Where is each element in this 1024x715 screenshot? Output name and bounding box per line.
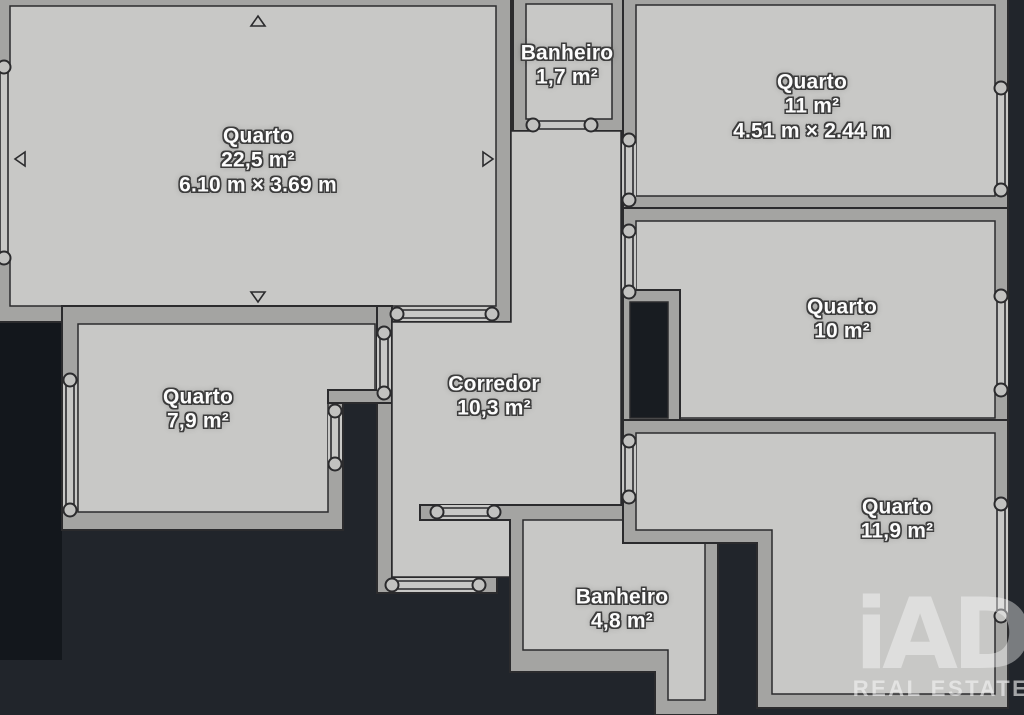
room-dimensions: 6.10 m × 3.69 m [179,173,337,197]
room-label-corredor: Corredor 10,3 m² [448,373,539,422]
door-quarto-10 [622,225,636,299]
room-name: Banheiro [521,42,614,66]
room-area: 11 m² [733,95,891,119]
room-area: 7,9 m² [163,410,233,434]
window-quarto-22-left [0,61,11,265]
room-name: Corredor [448,373,539,397]
room-name: Quarto [733,70,891,94]
floor-plan: Quarto 22,5 m² 6.10 m × 3.69 m Banheiro … [0,0,1024,715]
door-banheiro-17 [527,118,598,132]
door-banheiro-48 [431,505,501,519]
room-label-quarto-11: Quarto 11 m² 4.51 m × 2.44 m [733,70,891,143]
window-quarto-79-lower-right [328,405,342,471]
room-area: 10,3 m² [448,397,539,421]
door-quarto-79 [377,327,391,400]
room-label-banheiro-48: Banheiro 4,8 m² [576,586,669,635]
door-quarto-22 [391,307,499,321]
window-quarto-10-right [994,290,1008,397]
room-area: 11,9 m² [861,520,934,544]
room-area: 10 m² [807,320,877,344]
room-label-banheiro-17: Banheiro 1,7 m² [521,42,614,91]
window-quarto-79-left [63,374,77,517]
room-name: Quarto [807,296,877,320]
room-name: Quarto [861,496,934,520]
shaft [630,302,668,418]
door-quarto-119 [622,435,636,504]
room-label-quarto-119: Quarto 11,9 m² [861,496,934,545]
room-label-quarto-22: Quarto 22,5 m² 6.10 m × 3.69 m [179,124,337,197]
room-label-quarto-10: Quarto 10 m² [807,296,877,345]
door-quarto-11 [622,134,636,207]
room-area: 1,7 m² [521,66,614,90]
iad-logo: iAD [846,586,1024,684]
room-name: Banheiro [576,586,669,610]
real-estate-label: REAL ESTATE [846,676,1024,702]
room-label-quarto-79: Quarto 7,9 m² [163,386,233,435]
room-area: 4,8 m² [576,610,669,634]
room-name: Quarto [179,124,337,148]
room-dimensions: 4.51 m × 2.44 m [733,119,891,143]
window-corredor-bottom [386,578,486,592]
room-name: Quarto [163,386,233,410]
window-quarto-11-right [994,82,1008,197]
dark-patch [0,318,62,660]
room-area: 22,5 m² [179,149,337,173]
iad-watermark: iAD REAL ESTATE [846,586,1024,702]
